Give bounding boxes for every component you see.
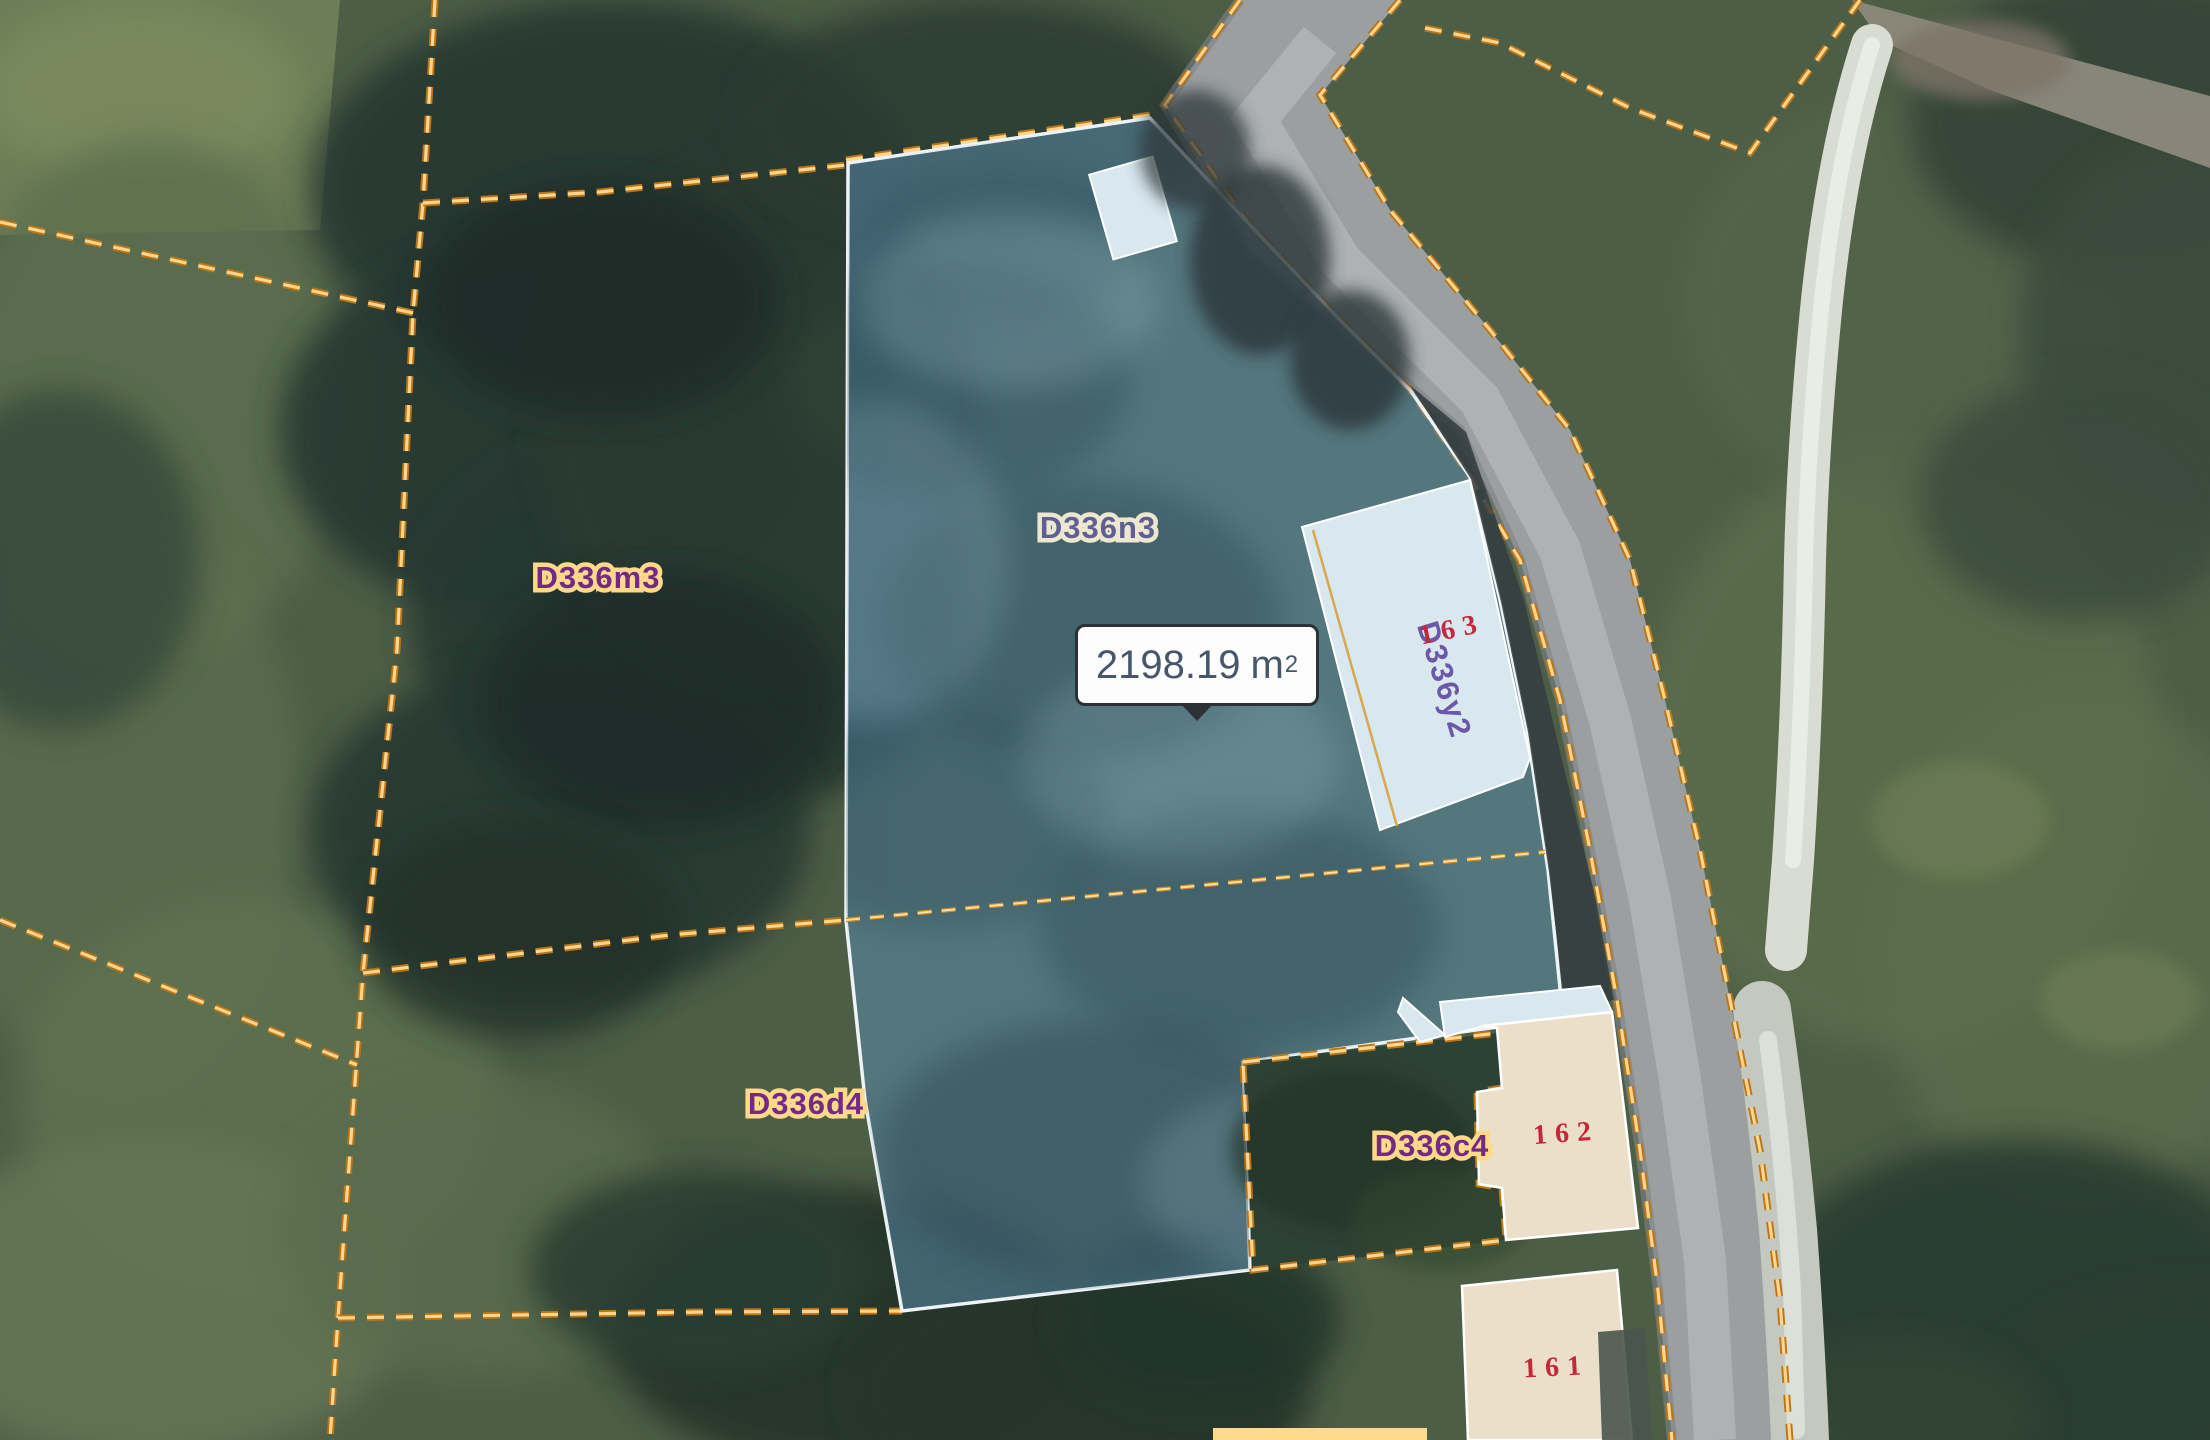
- building-label-161: 161: [1522, 1350, 1590, 1384]
- tooltip-caret: [1180, 703, 1214, 721]
- area-tooltip: 2198.19 m2: [1075, 624, 1319, 706]
- area-unit: m: [1250, 645, 1283, 685]
- building-label-162: 162: [1532, 1116, 1600, 1152]
- area-value: 2198.19: [1096, 645, 1241, 685]
- building-161-courtyard: [1598, 1328, 1652, 1440]
- svg-text:D336: D336: [1281, 1434, 1359, 1440]
- parcel-label-d336n3: D336n3: [1040, 510, 1156, 545]
- parcel-label-bottom-cutoff: D336: [1213, 1428, 1427, 1440]
- parcel-label-d336d4: D336d4: [748, 1086, 864, 1121]
- parcel-label-d336m3: D336m3: [536, 560, 661, 595]
- cadastre-map-view: D336n3 D336m3 D336d4 D336c4 D336y2 163 1…: [0, 0, 2210, 1440]
- map-canvas[interactable]: D336n3 D336m3 D336d4 D336c4 D336y2 163 1…: [0, 0, 2210, 1440]
- parcel-label-d336c4: D336c4: [1375, 1128, 1490, 1163]
